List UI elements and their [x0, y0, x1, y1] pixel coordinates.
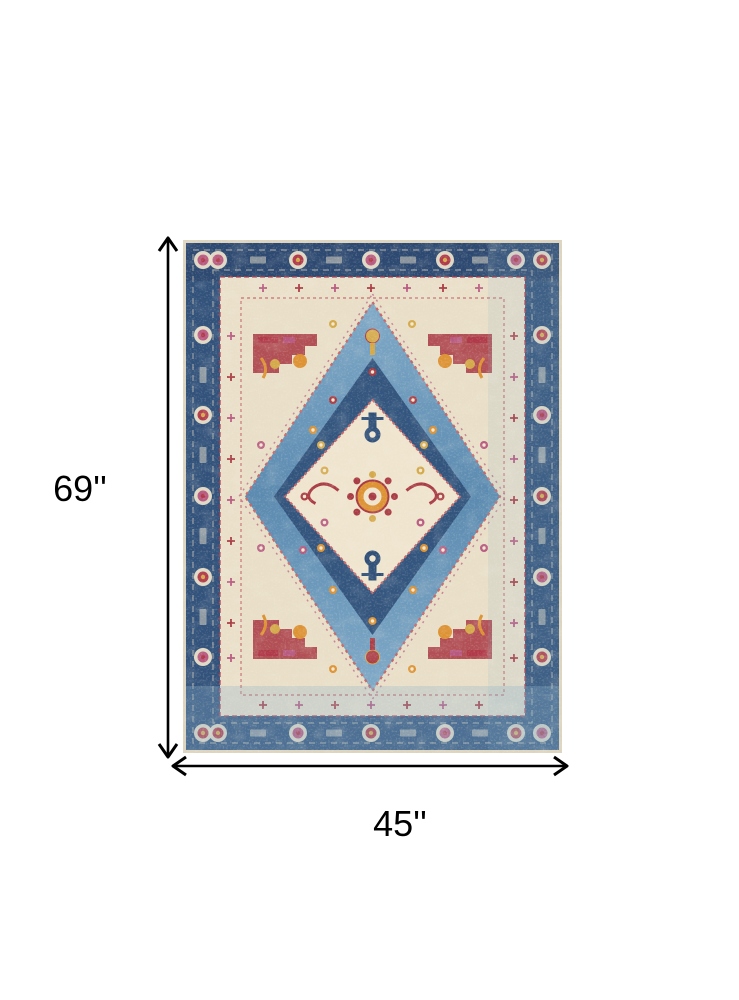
- height-dimension-label: 69'': [28, 469, 132, 509]
- rug-distress-overlay: [183, 240, 562, 753]
- height-dimension-arrow: [155, 235, 181, 760]
- width-dimension-label: 45'': [348, 804, 452, 844]
- rug-graphic: [183, 240, 562, 753]
- product-dimension-diagram: 69'' 45'': [0, 0, 739, 1000]
- rug-product-image: [183, 240, 562, 753]
- width-dimension-arrow: [170, 753, 570, 779]
